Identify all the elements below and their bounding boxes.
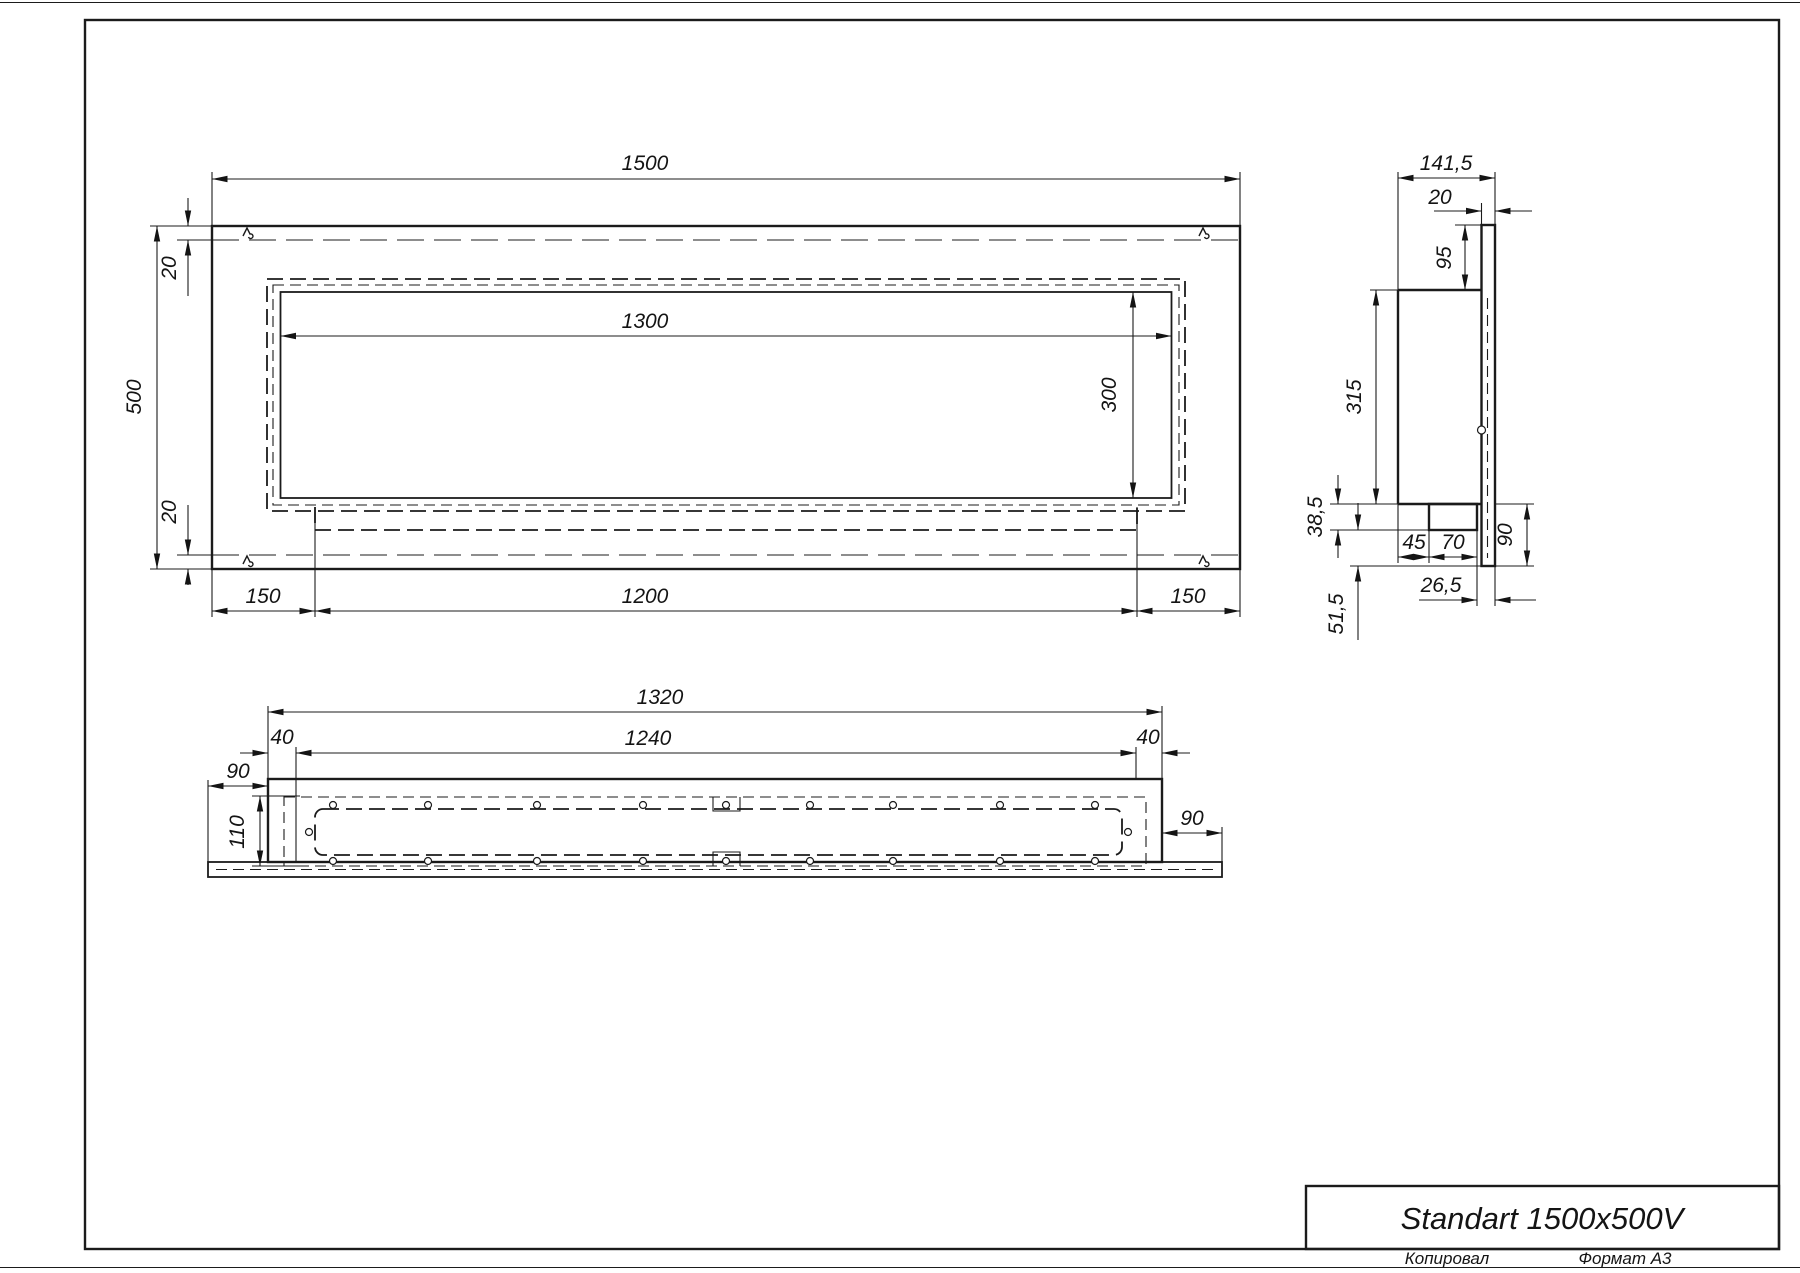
dim-front-opening-width: 1300	[622, 310, 669, 333]
dim-bottom-body-length: 1320	[637, 686, 684, 709]
front-view: 1500 500 20 1300 300 20 150 1200 150	[123, 152, 1240, 617]
dim-front-overall-height: 500	[123, 379, 146, 414]
dim-side-top-flange: 95	[1433, 246, 1456, 270]
dim-side-bracket-offset: 45	[1402, 531, 1426, 554]
dim-front-tray-width: 1200	[622, 585, 669, 608]
dim-front-overall-width: 1500	[622, 152, 669, 175]
dim-side-bottom-flange: 90	[1494, 523, 1517, 547]
drawing-title: Standart 1500x500V	[1401, 1201, 1687, 1236]
drawing-frame	[0, 3, 1800, 1268]
front-opening-hidden-1	[273, 285, 1179, 505]
bottom-body	[268, 779, 1162, 862]
dim-side-body-height: 315	[1343, 379, 1366, 414]
drawing-sheet: 1500 500 20 1300 300 20 150 1200 150	[0, 0, 1800, 1273]
front-opening-hidden-2	[267, 279, 1185, 511]
dim-bottom-inner-length: 1240	[625, 727, 672, 750]
format-label: Формат А3	[1578, 1249, 1672, 1268]
dim-bottom-left-inset: 40	[270, 726, 294, 749]
dim-front-right-offset: 150	[1170, 585, 1205, 608]
dim-bottom-depth: 110	[226, 815, 249, 849]
weld-mark-icon	[243, 556, 253, 567]
dim-side-depth: 141,5	[1420, 152, 1473, 175]
dim-bottom-right-overhang: 90	[1180, 807, 1204, 830]
dim-bottom-left-overhang: 90	[226, 760, 250, 783]
dim-front-bottom-fold: 20	[158, 500, 181, 525]
front-outer-panel	[212, 226, 1240, 569]
bottom-extension-lines	[208, 706, 1222, 866]
dim-side-bottom-gap: 51,5	[1325, 593, 1348, 634]
side-front-plate	[1482, 225, 1496, 566]
copied-label: Копировал	[1405, 1249, 1490, 1268]
bottom-hidden-2	[315, 809, 1122, 855]
dim-bottom-right-inset: 40	[1136, 726, 1160, 749]
side-view: 141,5 20 95 315 38,5 51,5 45 70 26,5 90	[1304, 152, 1536, 640]
dim-front-opening-height: 300	[1098, 377, 1121, 412]
frame-border	[85, 20, 1779, 1249]
dim-front-top-fold: 20	[158, 256, 181, 281]
side-dimensions: 141,5 20 95 315 38,5 51,5 45 70 26,5 90	[1304, 152, 1536, 640]
dim-side-rear-offset: 26,5	[1420, 574, 1462, 597]
dim-front-left-offset: 150	[245, 585, 280, 608]
side-bracket	[1429, 504, 1477, 530]
weld-mark-icon	[1199, 228, 1209, 239]
side-hole	[1478, 426, 1486, 434]
weld-mark-icon	[1199, 556, 1209, 567]
front-dimensions: 1500 500 20 1300 300 20 150 1200 150	[123, 152, 1240, 611]
dim-side-bracket-height: 38,5	[1304, 496, 1327, 537]
bottom-dimensions: 1320 1240 40 40 90 90 110	[208, 686, 1222, 866]
dim-side-plate-thickness: 20	[1427, 186, 1452, 209]
bottom-view: 1320 1240 40 40 90 90 110	[208, 686, 1222, 877]
weld-mark-icon	[243, 228, 253, 239]
title-block: Standart 1500x500V Копировал Формат А3	[1306, 1186, 1779, 1268]
front-extension-lines	[150, 172, 1240, 617]
dim-side-bracket-width: 70	[1441, 531, 1465, 554]
front-opening	[281, 292, 1172, 498]
